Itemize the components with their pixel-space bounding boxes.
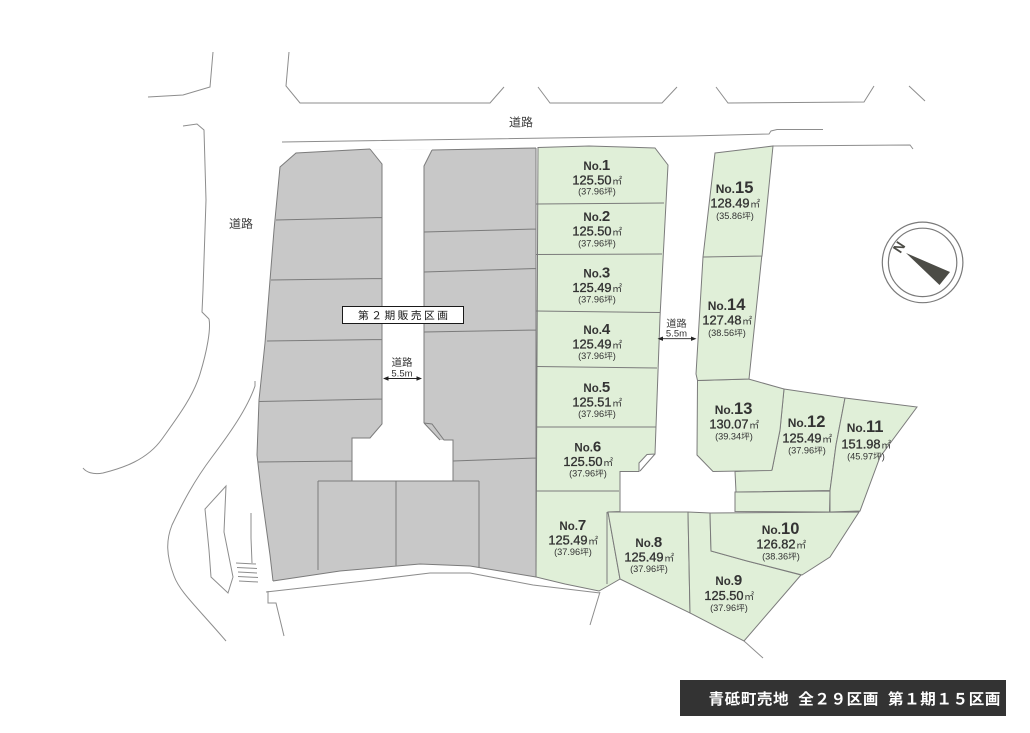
svg-text:125.50: 125.50 xyxy=(704,588,743,603)
svg-text:No.12: No.12 xyxy=(788,413,826,431)
svg-text:): ) xyxy=(604,469,607,479)
svg-text:(39.34: (39.34 xyxy=(715,432,741,442)
svg-text:No.10: No.10 xyxy=(762,520,800,538)
svg-text:(37.96: (37.96 xyxy=(630,564,656,574)
svg-text:126.82: 126.82 xyxy=(756,537,795,552)
svg-text:125.49: 125.49 xyxy=(572,280,611,295)
svg-text:5.5m: 5.5m xyxy=(666,329,687,340)
svg-text:(37.96: (37.96 xyxy=(578,295,604,305)
svg-text:130.07: 130.07 xyxy=(709,417,748,432)
svg-text:): ) xyxy=(750,432,753,442)
svg-text:151.98: 151.98 xyxy=(841,437,880,452)
svg-text:): ) xyxy=(613,187,616,197)
svg-text:(37.96: (37.96 xyxy=(578,187,604,197)
svg-text:125.51: 125.51 xyxy=(572,395,611,410)
svg-text:No.15: No.15 xyxy=(716,179,754,197)
svg-text:(37.96: (37.96 xyxy=(710,603,736,613)
svg-text:): ) xyxy=(745,603,748,613)
svg-text:125.49: 125.49 xyxy=(782,431,821,446)
svg-text:): ) xyxy=(613,295,616,305)
svg-text:(37.96: (37.96 xyxy=(554,547,580,557)
svg-text:125.49: 125.49 xyxy=(548,533,587,548)
svg-text:125.49: 125.49 xyxy=(572,337,611,352)
svg-text:): ) xyxy=(613,239,616,249)
svg-text:): ) xyxy=(823,446,826,456)
svg-text:(37.96: (37.96 xyxy=(578,351,604,361)
svg-text:128.49: 128.49 xyxy=(710,196,749,211)
svg-text:): ) xyxy=(589,547,592,557)
svg-text:125.50: 125.50 xyxy=(563,454,602,469)
svg-text:No.11: No.11 xyxy=(847,418,884,436)
svg-text:No.14: No.14 xyxy=(708,296,747,314)
svg-text:(37.96: (37.96 xyxy=(578,239,604,249)
svg-text:): ) xyxy=(797,552,800,562)
svg-text:No.13: No.13 xyxy=(715,400,753,418)
svg-text:): ) xyxy=(882,452,885,462)
svg-text:(38.56: (38.56 xyxy=(708,328,734,338)
svg-text:(38.36: (38.36 xyxy=(762,552,788,562)
svg-text:127.48: 127.48 xyxy=(702,313,741,328)
svg-text:): ) xyxy=(665,564,668,574)
svg-text:(37.96: (37.96 xyxy=(578,409,604,419)
svg-text:(37.96: (37.96 xyxy=(569,469,595,479)
svg-text:): ) xyxy=(751,211,754,221)
svg-text:(45.97: (45.97 xyxy=(847,452,873,462)
svg-text:): ) xyxy=(743,328,746,338)
svg-text:): ) xyxy=(613,409,616,419)
svg-text:(37.96: (37.96 xyxy=(788,446,814,456)
svg-text:125.50: 125.50 xyxy=(572,173,611,188)
svg-text:125.49: 125.49 xyxy=(624,550,663,565)
svg-text:125.50: 125.50 xyxy=(572,224,611,239)
svg-text:5.5m: 5.5m xyxy=(391,369,412,380)
svg-text:(35.86: (35.86 xyxy=(716,211,742,221)
svg-text:): ) xyxy=(613,351,616,361)
